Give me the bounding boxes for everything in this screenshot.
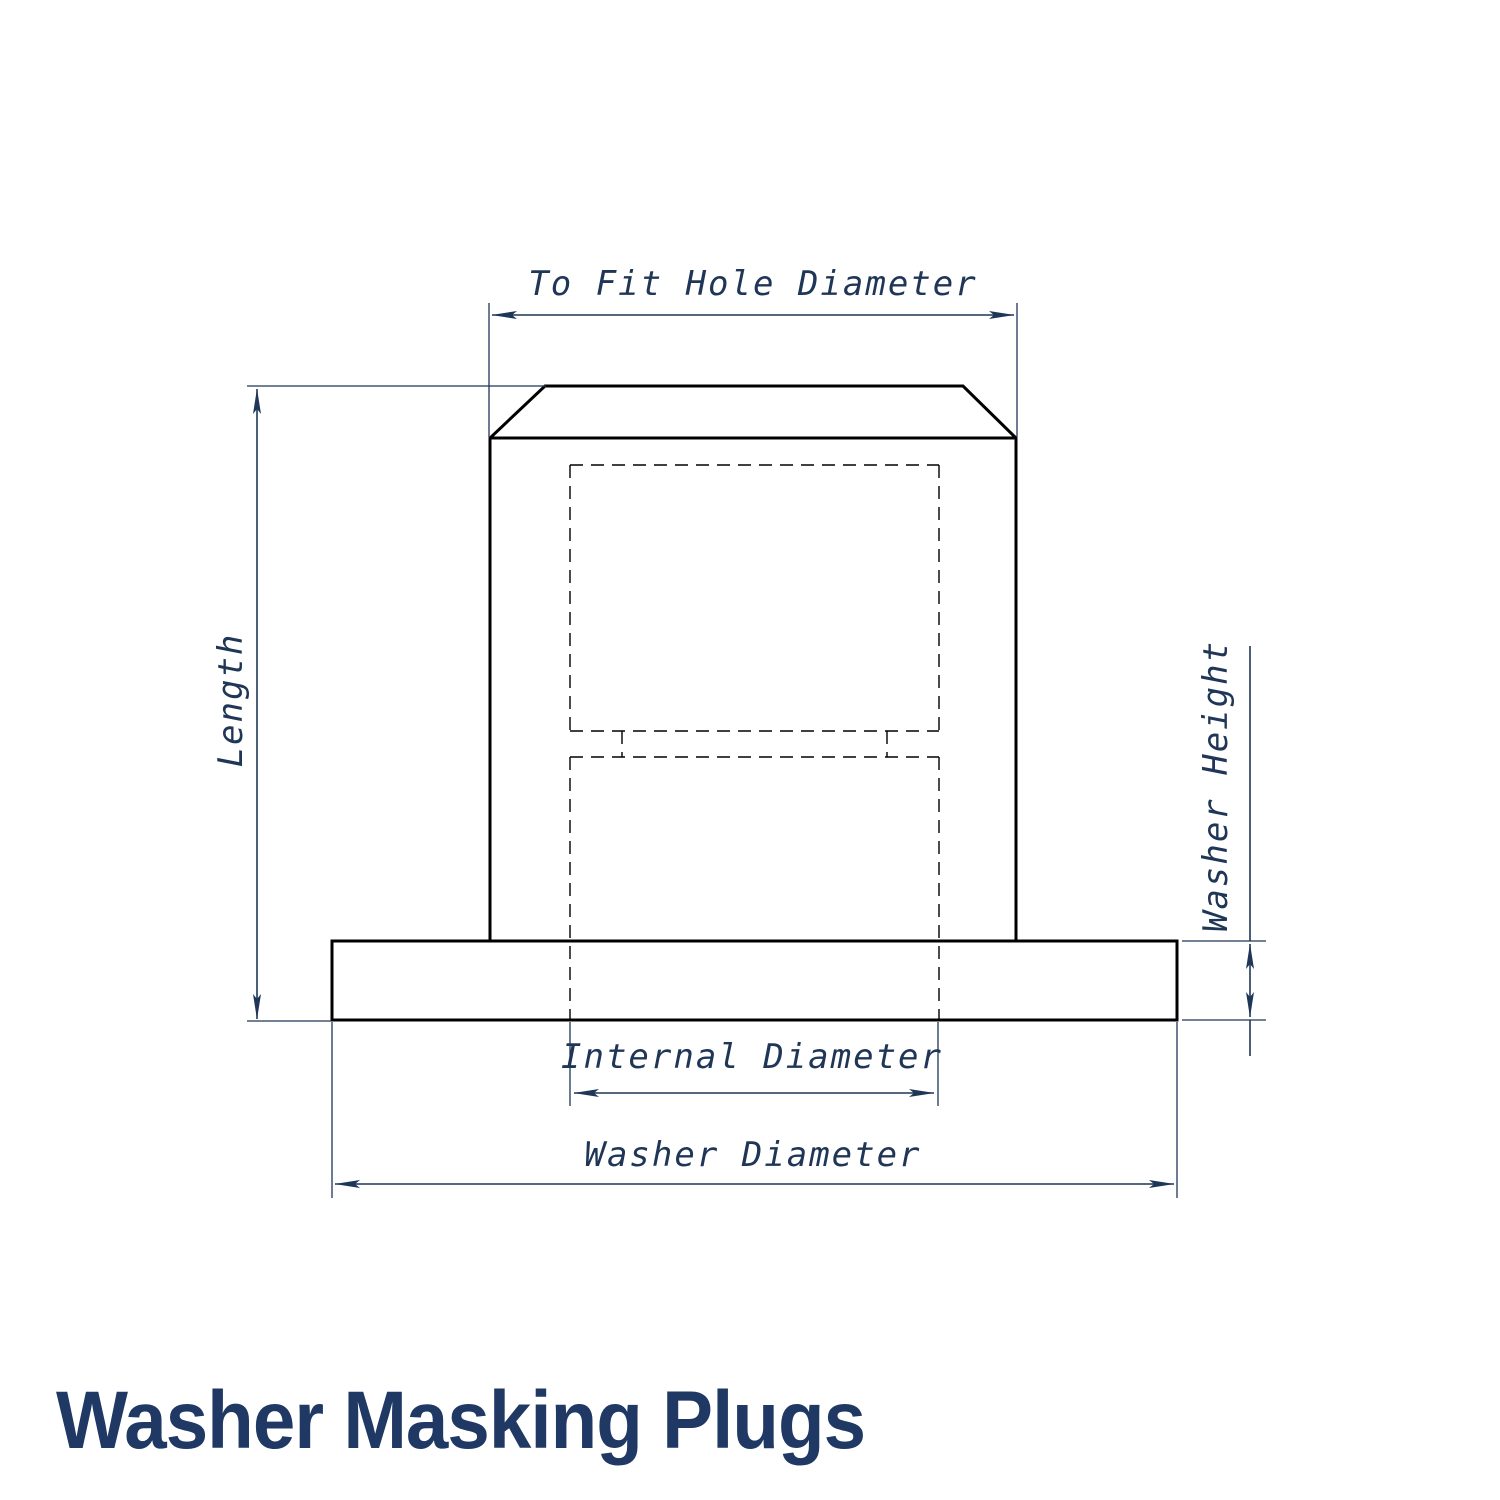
label-washer-diameter: Washer Diameter — [584, 1135, 921, 1175]
label-length: Length — [211, 633, 251, 768]
label-washer-height: Washer Height — [1196, 640, 1236, 932]
plug-body-outline — [490, 386, 1016, 941]
label-internal-diameter: Internal Diameter — [561, 1037, 943, 1077]
page: To Fit Hole Diameter Length Washer Heigh… — [0, 0, 1500, 1500]
plug-outline-group — [332, 386, 1177, 1020]
internal-cavity-dashed-group — [570, 465, 939, 1020]
page-title: Washer Masking Plugs — [56, 1374, 865, 1468]
washer-flange-outline — [332, 941, 1177, 1020]
label-to-fit-hole-diameter: To Fit Hole Diameter — [528, 264, 977, 304]
